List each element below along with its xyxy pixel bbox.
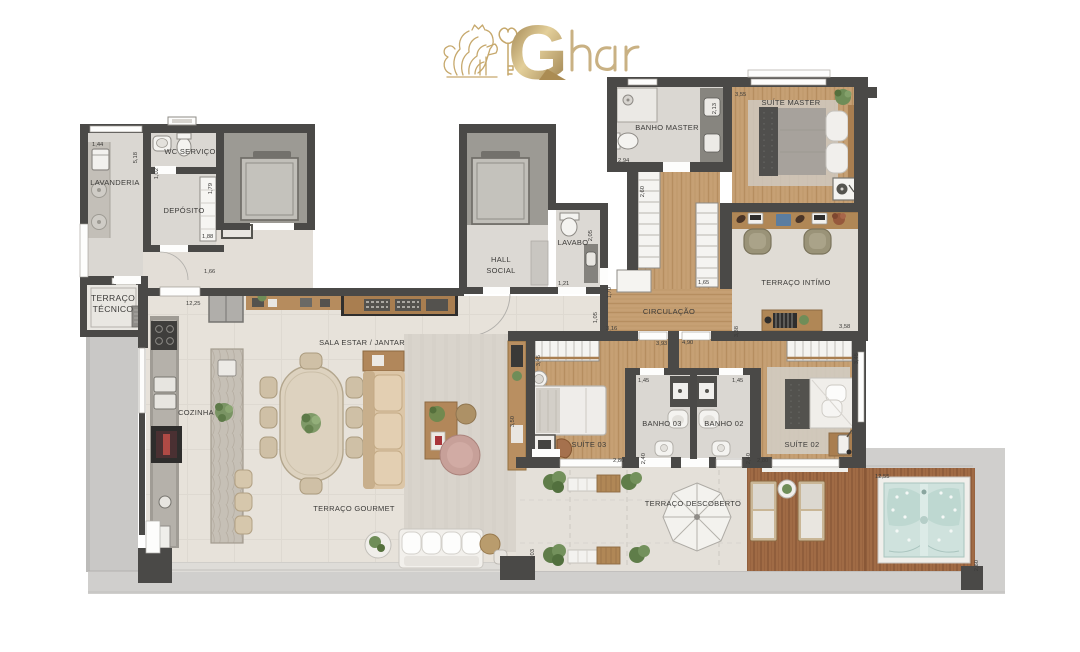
svg-text:3,58: 3,58	[839, 324, 850, 330]
svg-text:CIRCULAÇÃO: CIRCULAÇÃO	[643, 307, 695, 316]
svg-text:12,55: 12,55	[875, 474, 890, 480]
svg-text:DEPÓSITO: DEPÓSITO	[163, 206, 204, 215]
svg-text:3,03: 3,03	[530, 549, 536, 560]
svg-text:1,02: 1,02	[154, 168, 160, 179]
svg-text:SUÍTE 02: SUÍTE 02	[785, 440, 820, 449]
svg-text:TERRAÇO DESCOBERTO: TERRAÇO DESCOBERTO	[645, 499, 741, 508]
svg-text:3,93: 3,93	[656, 341, 667, 347]
svg-text:TÉCNICO: TÉCNICO	[93, 304, 134, 314]
svg-text:1,44: 1,44	[92, 142, 104, 148]
svg-text:1,66: 1,66	[204, 269, 215, 275]
svg-text:LAVANDERIA: LAVANDERIA	[90, 178, 139, 187]
svg-text:WC SERVIÇO: WC SERVIÇO	[164, 147, 215, 156]
svg-text:SOCIAL: SOCIAL	[486, 266, 515, 275]
svg-text:12,25: 12,25	[186, 301, 201, 307]
svg-text:3,55: 3,55	[735, 92, 746, 98]
svg-text:BANHO 03: BANHO 03	[642, 419, 682, 428]
svg-text:2,80: 2,80	[757, 458, 768, 464]
svg-text:2,05: 2,05	[588, 230, 594, 241]
svg-text:3,45: 3,45	[536, 355, 542, 366]
svg-text:3,38: 3,38	[734, 326, 740, 337]
svg-text:3,16: 3,16	[606, 326, 617, 332]
svg-text:SUÍTE 03: SUÍTE 03	[572, 440, 607, 449]
svg-text:SUÍTE MASTER: SUÍTE MASTER	[761, 98, 820, 107]
svg-text:1,79: 1,79	[208, 183, 214, 194]
svg-text:LAVABO: LAVABO	[558, 238, 589, 247]
svg-text:3,50: 3,50	[510, 416, 516, 427]
svg-text:1,45: 1,45	[732, 378, 743, 384]
svg-text:2,60: 2,60	[640, 186, 646, 197]
svg-text:1,21: 1,21	[558, 281, 569, 287]
svg-text:1,45: 1,45	[638, 378, 649, 384]
svg-text:BANHO MASTER: BANHO MASTER	[635, 123, 699, 132]
svg-text:TERRAÇO INTÍMO: TERRAÇO INTÍMO	[761, 278, 830, 287]
svg-text:1,70: 1,70	[607, 287, 613, 298]
svg-text:2,13: 2,13	[712, 103, 718, 114]
svg-text:2,60: 2,60	[974, 560, 980, 571]
svg-text:1,65: 1,65	[698, 280, 709, 286]
svg-text:3,45: 3,45	[854, 353, 860, 364]
svg-text:TERRAÇO: TERRAÇO	[91, 293, 135, 303]
svg-text:5,18: 5,18	[133, 152, 139, 163]
svg-text:HALL: HALL	[491, 255, 511, 264]
svg-text:BANHO 02: BANHO 02	[704, 419, 744, 428]
svg-text:COZINHA: COZINHA	[178, 408, 214, 417]
svg-text:2,80: 2,80	[613, 458, 624, 464]
svg-text:SALA ESTAR / JANTAR: SALA ESTAR / JANTAR	[319, 338, 405, 347]
svg-text:1,05: 1,05	[593, 312, 599, 323]
svg-text:TERRAÇO GOURMET: TERRAÇO GOURMET	[313, 504, 395, 513]
svg-text:4,90: 4,90	[682, 340, 693, 346]
svg-text:G: G	[508, 10, 568, 96]
svg-text:2,40: 2,40	[641, 453, 647, 464]
svg-text:1,88: 1,88	[202, 234, 213, 240]
svg-text:2,94: 2,94	[618, 158, 630, 164]
svg-text:2,40: 2,40	[746, 453, 752, 464]
